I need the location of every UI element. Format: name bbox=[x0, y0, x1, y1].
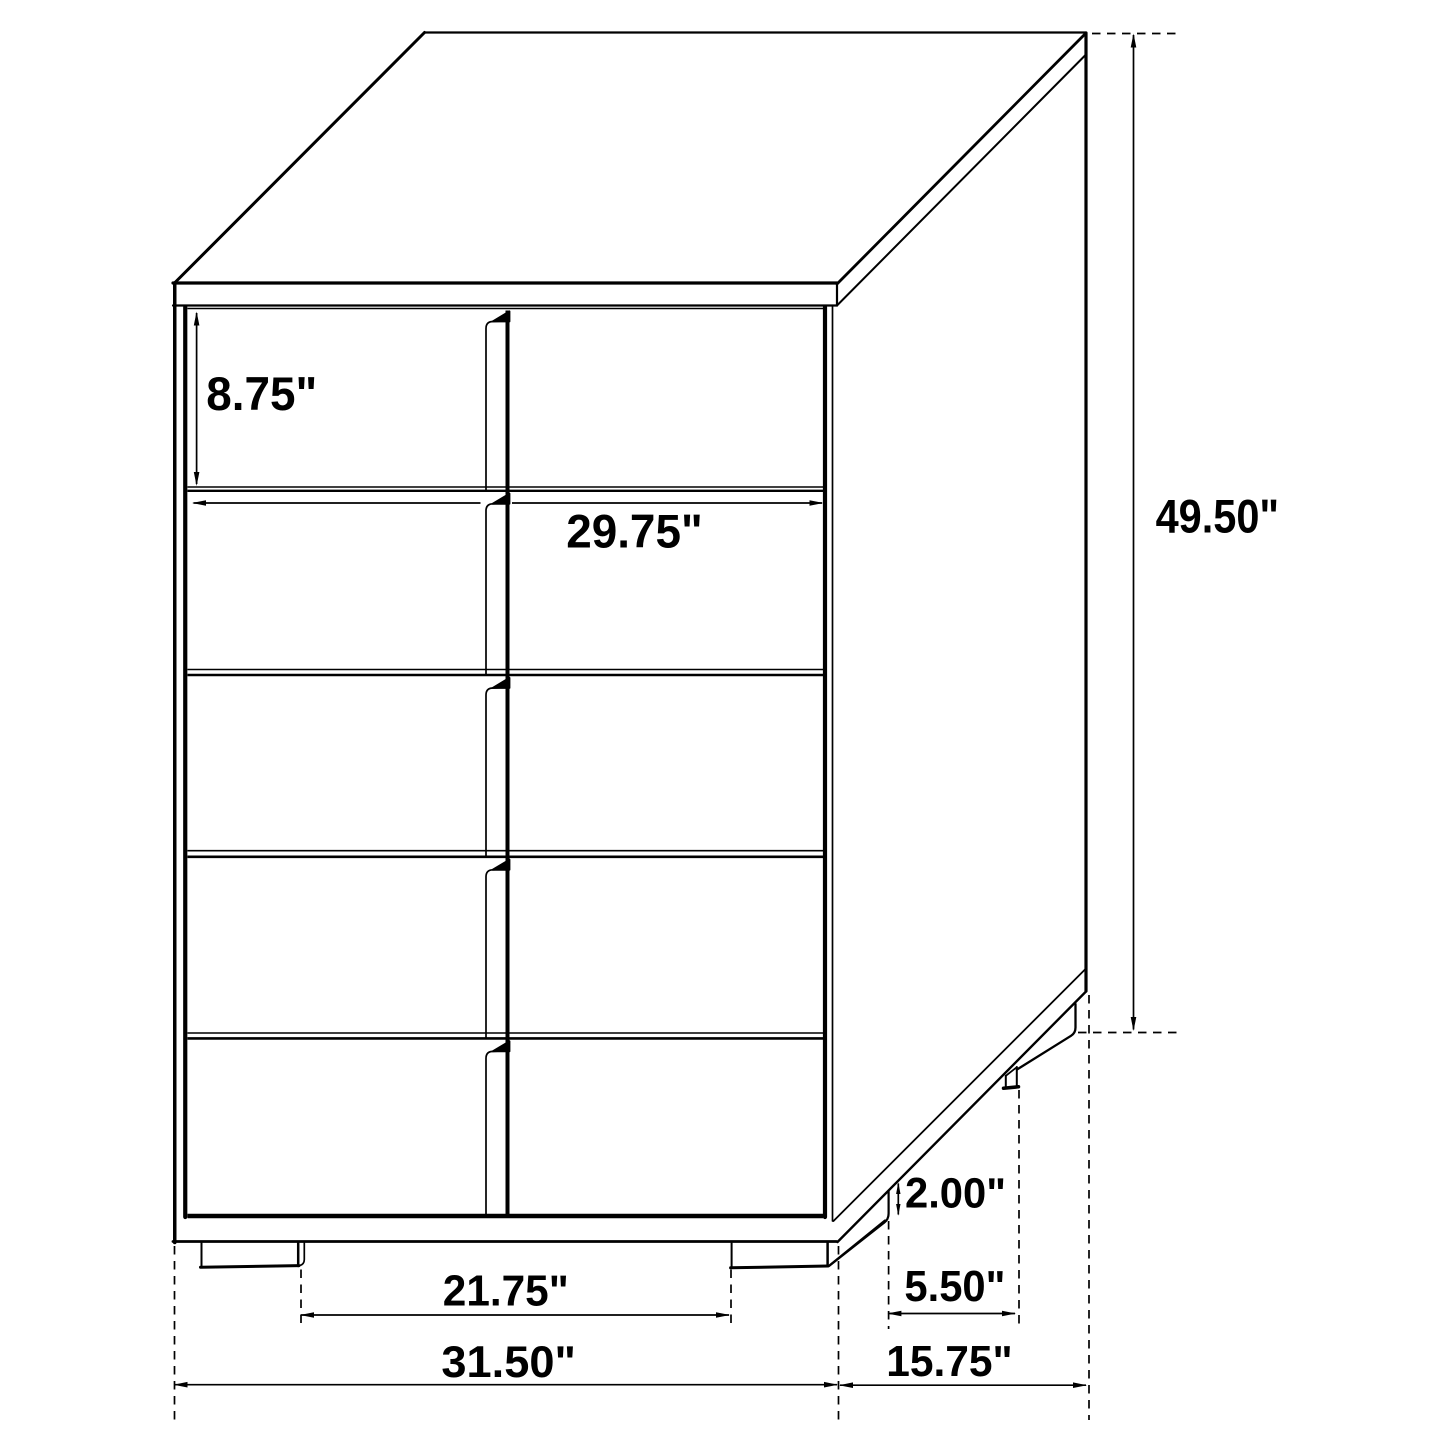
svg-text:15.75": 15.75" bbox=[886, 1337, 1013, 1386]
svg-text:31.50": 31.50" bbox=[441, 1338, 576, 1387]
svg-text:8.75": 8.75" bbox=[206, 368, 317, 421]
svg-text:49.50": 49.50" bbox=[1156, 491, 1280, 544]
svg-text:21.75": 21.75" bbox=[443, 1267, 569, 1316]
svg-text:29.75": 29.75" bbox=[566, 506, 703, 559]
svg-text:5.50": 5.50" bbox=[904, 1262, 1005, 1311]
svg-text:2.00": 2.00" bbox=[905, 1170, 1006, 1218]
